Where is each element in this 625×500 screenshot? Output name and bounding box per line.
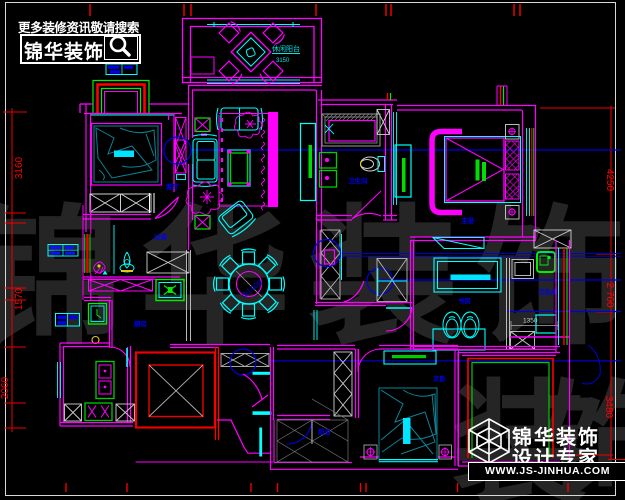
svg-text:4250: 4250 — [604, 169, 615, 192]
svg-text:1570: 1570 — [14, 287, 25, 310]
svg-text:卫生间: 卫生间 — [538, 287, 558, 296]
svg-text:休闲阳台: 休闲阳台 — [272, 44, 300, 53]
svg-text:次卧: 次卧 — [433, 374, 447, 383]
svg-text:主卧: 主卧 — [461, 216, 475, 225]
svg-text:3150: 3150 — [276, 58, 290, 64]
svg-text:阳台: 阳台 — [318, 427, 332, 436]
svg-text:2 760: 2 760 — [604, 282, 615, 307]
svg-text:2060: 2060 — [0, 376, 11, 399]
svg-text:书房: 书房 — [458, 296, 472, 305]
svg-text:客厅: 客厅 — [165, 182, 180, 191]
svg-text:卫生间: 卫生间 — [348, 176, 368, 185]
svg-text:过道: 过道 — [154, 232, 168, 241]
svg-text:3160: 3160 — [14, 156, 25, 179]
svg-text:3480: 3480 — [603, 396, 614, 419]
svg-text:厨房: 厨房 — [134, 319, 148, 328]
